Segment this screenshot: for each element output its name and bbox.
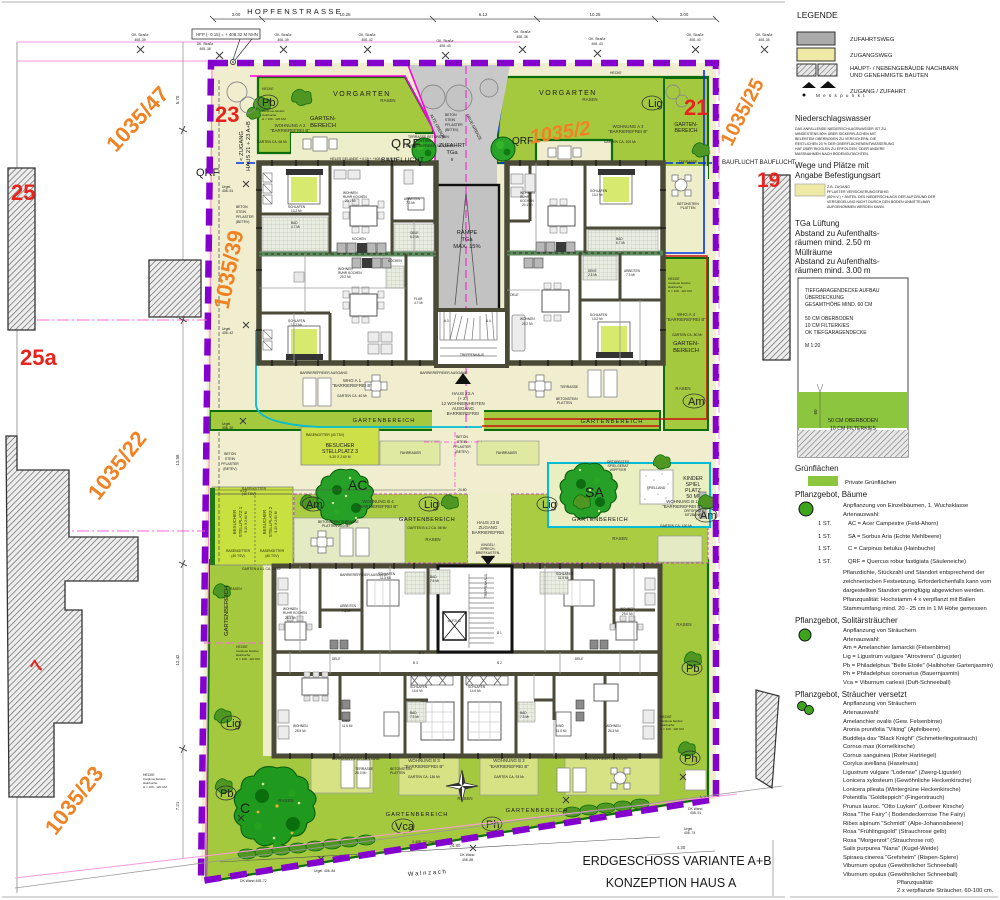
- svg-text:"BARRIEREFREI B": "BARRIEREFREI B": [666, 317, 706, 322]
- svg-text:C = Carpinus betulus (Hainbuch: C = Carpinus betulus (Hainbuche): [848, 546, 936, 552]
- svg-text:12.42: 12.42: [175, 654, 180, 666]
- svg-text:408..38: 408..38: [516, 35, 527, 39]
- svg-text:"BARRIEREFREI B": "BARRIEREFREI B": [489, 764, 529, 769]
- svg-text:HELES GELANDE + 0.15 + +408.47: HELES GELANDE + 0.15 + +408.47 M NHN: [330, 157, 398, 161]
- svg-text:BAUFLUCHT BAUFLUCHT: BAUFLUCHT BAUFLUCHT: [722, 160, 796, 166]
- svg-text:WOHNEN: WOHNEN: [520, 317, 535, 321]
- svg-text:PFLASTER: PFLASTER: [236, 215, 254, 219]
- svg-text:RASENGITTER: RASENGITTER: [226, 549, 251, 553]
- svg-text:RASENGITTER: RASENGITTER: [260, 549, 285, 553]
- svg-text:25.0 M²: 25.0 M²: [622, 612, 633, 616]
- svg-text:1 ST.: 1 ST.: [818, 521, 832, 527]
- svg-text:GARTENBEREICH: GARTENBEREICH: [581, 419, 644, 425]
- svg-text:13.58: 13.58: [175, 454, 180, 466]
- svg-text:20.1 M²: 20.1 M²: [522, 203, 533, 207]
- svg-text:4.7 M²: 4.7 M²: [291, 225, 300, 229]
- svg-text:7.3 M²: 7.3 M²: [626, 273, 635, 277]
- svg-text:PLATTEN: PLATTEN: [680, 206, 696, 210]
- svg-text:4.7 M²: 4.7 M²: [414, 301, 423, 305]
- svg-text:ÜBERDECKUNG: ÜBERDECKUNG: [805, 294, 844, 301]
- svg-text:DELE: DELE: [575, 657, 583, 661]
- svg-text:408..85: 408..85: [462, 858, 473, 862]
- svg-text:Viburnum opulus (Gewöhnlicher: Viburnum opulus (Gewöhnlicher Schneeball…: [843, 872, 958, 878]
- svg-text:BETON: BETON: [456, 435, 468, 439]
- svg-text:408..43: 408..43: [439, 44, 450, 48]
- svg-text:"BARRIEREFREI B": "BARRIEREFREI B": [358, 504, 398, 509]
- svg-text:RASEN: RASEN: [230, 587, 242, 591]
- svg-text:GARTEN-: GARTEN-: [310, 116, 336, 122]
- svg-text:BESUCHER: BESUCHER: [262, 510, 267, 534]
- svg-text:Stammumfang mind. 20 - 25 cm i: Stammumfang mind. 20 - 25 cm in 1 M Höhe…: [843, 606, 987, 612]
- svg-text:Pflanzdichte, Stückzahl und St: Pflanzdichte, Stückzahl und Standort ent…: [843, 570, 985, 576]
- svg-text:KONZEPTION HAUS A: KONZEPTION HAUS A: [606, 876, 737, 890]
- svg-text:Lonicera xylosteum (Gewöhnlich: Lonicera xylosteum (Gewöhnliche Heckenki…: [843, 778, 972, 784]
- svg-text:Artenauswahl:: Artenauswahl:: [843, 512, 880, 518]
- svg-text:OK. Straße: OK. Straße: [359, 33, 376, 37]
- svg-text:Corylus avellana (Haselnuss): Corylus avellana (Haselnuss): [843, 761, 918, 767]
- svg-text:Pflanzgebot, Bäume: Pflanzgebot, Bäume: [795, 490, 868, 499]
- svg-text:Aronia prunifolia "Viking" (Ap: Aronia prunifolia "Viking" (Apfelbeere): [843, 727, 940, 733]
- svg-text:Pflanzgebot, Solitärsträucher: Pflanzgebot, Solitärsträucher: [795, 616, 898, 625]
- svg-text:BETON: BETON: [236, 205, 248, 209]
- svg-text:OK. Straße: OK. Straße: [514, 30, 531, 34]
- svg-text:HAUPT- / NEBENGEBÄUDE NACHBARN: HAUPT- / NEBENGEBÄUDE NACHBARN: [850, 65, 959, 72]
- svg-text:HECKE: HECKE: [610, 71, 622, 75]
- svg-text:zeichnerischen Festsetzung. Er: zeichnerischen Festsetzung. Erforderlich…: [843, 579, 991, 585]
- svg-text:14.6 M²: 14.6 M²: [470, 689, 481, 693]
- svg-text:11.6 M²: 11.6 M²: [342, 724, 353, 728]
- svg-text:GARTENBEREICH: GARTENBEREICH: [353, 418, 416, 424]
- svg-text:HAUS 21 + 23 A+B: HAUS 21 + 23 A+B: [246, 121, 252, 171]
- svg-text:RAMPE: RAMPE: [457, 230, 478, 236]
- svg-text:7.21: 7.21: [175, 801, 180, 810]
- svg-text:Lig = Ligustrum vulgare "Atrov: Lig = Ligustrum vulgare "Atrovirens" (Li…: [843, 654, 961, 660]
- svg-text:STEIN: STEIN: [445, 118, 456, 122]
- svg-text:GARTENBEREICH: GARTENBEREICH: [224, 586, 230, 636]
- svg-text:H = 100 - 120 CM: H = 100 - 120 CM: [262, 117, 286, 121]
- svg-text:LEGENDE: LEGENDE: [797, 10, 838, 20]
- svg-text:BARRIEREFREI: BARRIEREFREI: [472, 530, 504, 535]
- svg-text:HAT ÜBER RIGOLEN ZU ERFOLGEN,: HAT ÜBER RIGOLEN ZU ERFOLGEN, ODER ANDER…: [795, 147, 885, 151]
- svg-text:WOHNEN: WOHNEN: [293, 724, 308, 728]
- svg-text:SA: SA: [585, 484, 604, 500]
- svg-text:408..35: 408..35: [758, 38, 769, 42]
- svg-text:A 3: A 3: [444, 319, 449, 323]
- svg-text:TIEFGARAGENDECKE AUFBAU: TIEFGARAGENDECKE AUFBAU: [805, 288, 880, 294]
- svg-text:BARRIEREFREI: BARRIEREFREI: [447, 411, 479, 416]
- svg-text:Lig: Lig: [424, 499, 439, 511]
- svg-text:RASENGITTER (40 TSV): RASENGITTER (40 TSV): [306, 433, 345, 437]
- svg-text:Private Grünflächen: Private Grünflächen: [845, 480, 896, 486]
- svg-text:PFLASTER VERSICKERUNGSFÄHIG: PFLASTER VERSICKERUNGSFÄHIG: [827, 190, 889, 194]
- svg-text:BEREICH: BEREICH: [673, 348, 699, 354]
- svg-text:STELLPLATZ 2: STELLPLATZ 2: [268, 506, 273, 537]
- svg-text:Grünflächen: Grünflächen: [795, 464, 839, 473]
- svg-text:Cornus sanguinea (Roter Hartri: Cornus sanguinea (Roter Hartriegel): [843, 753, 937, 759]
- svg-text:STEIN: STEIN: [236, 210, 247, 214]
- svg-text:BARRIEREFREIER AUSGANG: BARRIEREFREIER AUSGANG: [332, 757, 380, 761]
- svg-text:(60% V.) + ANTEIL DES NIEDERSC: (60% V.) + ANTEIL DES NIEDERSCHLAGS DER …: [827, 195, 936, 199]
- svg-text:Rosa "Morgenrot" (Strauchrose: Rosa "Morgenrot" (Strauchrose rot): [843, 838, 934, 844]
- svg-text:5.70: 5.70: [175, 95, 180, 104]
- svg-text:TERRASSE: TERRASSE: [679, 160, 698, 164]
- svg-text:DK Wand: DK Wand: [460, 853, 474, 857]
- svg-text:OK. Straße: OK. Straße: [437, 39, 454, 43]
- svg-text:7.3 M²: 7.3 M²: [410, 715, 419, 719]
- svg-text:28.5 M²: 28.5 M²: [295, 729, 306, 733]
- svg-text:19: 19: [757, 169, 780, 192]
- svg-text:GARTEN B 4.2 CA. 56 M²: GARTEN B 4.2 CA. 56 M²: [407, 526, 447, 530]
- svg-text:DK. Straße: DK. Straße: [197, 42, 214, 46]
- svg-text:(BETEV): (BETEV): [455, 450, 468, 454]
- svg-text:WOHNUNG B 2: WOHNUNG B 2: [493, 758, 525, 763]
- svg-text:2 x verpflanzte Sträucher, 60-: 2 x verpflanzte Sträucher, 60-100 cm.: [897, 888, 994, 894]
- svg-text:Vca: Vca: [395, 821, 415, 833]
- svg-text:Anpflanzung von Sträuchern: Anpflanzung von Sträuchern: [843, 628, 916, 634]
- svg-text:13.2 M²: 13.2 M²: [592, 317, 603, 321]
- svg-text:Pflanzgebot, Sträucher versetz: Pflanzgebot, Sträucher versetzt: [795, 690, 907, 699]
- svg-text:Amelanchier ovalis (Gew. Felse: Amelanchier ovalis (Gew. Felsenbirne): [843, 719, 942, 725]
- svg-text:GARTEN CA. 80 M²: GARTEN CA. 80 M²: [672, 333, 703, 337]
- svg-text:10 CM FILTERKIES: 10 CM FILTERKIES: [805, 323, 850, 329]
- svg-text:"BARRIEREFREI B": "BARRIEREFREI B": [270, 128, 310, 133]
- svg-text:< ZUGANG: < ZUGANG: [239, 131, 245, 161]
- svg-text:408..42: 408..42: [361, 38, 372, 42]
- svg-text:TGa Lüftung: TGa Lüftung: [795, 219, 839, 228]
- svg-text:STELLPLATZ 1: STELLPLATZ 1: [238, 506, 243, 537]
- svg-text:BETON: BETON: [445, 113, 457, 117]
- svg-text:A 4: A 4: [486, 319, 491, 323]
- svg-text:DELE: DELE: [332, 657, 340, 661]
- svg-text:408..74: 408..74: [684, 831, 695, 835]
- svg-text:(40 TSV): (40 TSV): [231, 554, 245, 558]
- svg-text:Anpflanzung von Sträuchern: Anpflanzung von Sträuchern: [843, 701, 916, 707]
- svg-text:6.7 M²: 6.7 M²: [616, 241, 625, 245]
- svg-text:PLATTEN 20.0 M²: PLATTEN 20.0 M²: [322, 524, 350, 528]
- svg-text:Pb = Philadelphus "Belle Etoil: Pb = Philadelphus "Belle Etoile" (Halbho…: [843, 663, 993, 669]
- svg-text:Lig: Lig: [542, 499, 557, 511]
- svg-text:"BARRIEREFREI B": "BARRIEREFREI B": [662, 504, 702, 509]
- svg-text:TERRASSE: TERRASSE: [560, 385, 579, 389]
- svg-text:GARTEN CA. 40 M²: GARTEN CA. 40 M²: [337, 394, 368, 398]
- svg-text:KOCHEN: KOCHEN: [352, 237, 366, 241]
- svg-text:GARTEN CA. 136 M²: GARTEN CA. 136 M²: [408, 775, 441, 779]
- svg-text:Viburnum opulus (Gewöhnlicher: Viburnum opulus (Gewöhnlicher Schneeball…: [843, 863, 958, 869]
- svg-text:räumen mind. 3.00 m: räumen mind. 3.00 m: [795, 266, 871, 275]
- svg-text:AUFZUG: AUFZUG: [448, 619, 462, 623]
- svg-text:WOHNUNG B 3: WOHNUNG B 3: [408, 758, 440, 763]
- svg-text:Abstand zu Aufenthalts-: Abstand zu Aufenthalts-: [795, 229, 880, 238]
- svg-text:50 CM OBERBODEN: 50 CM OBERBODEN: [828, 418, 878, 424]
- svg-text:WIPPTIER: WIPPTIER: [610, 468, 627, 472]
- svg-text:VORGARTEN: VORGARTEN: [333, 91, 391, 98]
- svg-text:Pb: Pb: [220, 788, 233, 800]
- svg-text:VORGARTEN: VORGARTEN: [539, 90, 597, 97]
- svg-text:OK. Straße: OK. Straße: [132, 33, 149, 37]
- svg-text:23: 23: [215, 102, 239, 127]
- svg-text:Pb: Pb: [686, 663, 699, 675]
- svg-text:BARRIEREFREIER AUSGANG: BARRIEREFREIER AUSGANG: [420, 371, 468, 375]
- svg-text:BARRIEREFREIER AUSGANG: BARRIEREFREIER AUSGANG: [580, 757, 628, 761]
- svg-text:Potentilla "Goldteppich" (Fing: Potentilla "Goldteppich" (Fingerstrauch): [843, 795, 944, 801]
- svg-text:PLATTEN: PLATTEN: [416, 139, 432, 143]
- svg-text:MINDESTENS 80% ÜBER SICKERFLÄC: MINDESTENS 80% ÜBER SICKERFLÄCHEN MIT: [795, 132, 877, 136]
- svg-text:(BETEV): (BETEV): [445, 128, 458, 132]
- svg-text:OK TIEFGARAGENDECKE: OK TIEFGARAGENDECKE: [805, 330, 867, 336]
- svg-text:29.2 M²: 29.2 M²: [340, 275, 351, 279]
- svg-text:BELEBTEM OBERBODEN ZU VERSICKE: BELEBTEM OBERBODEN ZU VERSICKERN. DIE: [795, 137, 877, 141]
- svg-text:60: 60: [813, 409, 818, 415]
- svg-text:"BARRIEREFREI B": "BARRIEREFREI B": [332, 383, 372, 388]
- svg-text:29.2 M²: 29.2 M²: [522, 322, 533, 326]
- svg-text:408..39: 408..39: [134, 38, 145, 42]
- svg-text:GARTENBEREICH: GARTENBEREICH: [506, 808, 569, 814]
- svg-text:ANLAGE: ANLAGE: [481, 555, 495, 559]
- svg-text:BEREICH: BEREICH: [674, 128, 697, 134]
- svg-text:13.2 M²: 13.2 M²: [291, 323, 302, 327]
- svg-text:25a: 25a: [20, 345, 57, 370]
- svg-text:5.20 X 2.60 M: 5.20 X 2.60 M: [274, 511, 278, 532]
- svg-text:PFLASTER: PFLASTER: [221, 462, 239, 466]
- svg-text:VERSIEGELUNG NICHT DURCH DEN B: VERSIEGELUNG NICHT DURCH DEN BODEN UNMIT…: [827, 200, 930, 204]
- svg-text:MASSNAHMEN NACH BODENGUTACHTEN: MASSNAHMEN NACH BODENGUTACHTEN.: [795, 152, 869, 156]
- svg-text:QRF = Quercus robur fastigiata: QRF = Quercus robur fastigiata (Säulenei…: [848, 559, 966, 565]
- svg-text:11.5 M²: 11.5 M²: [558, 576, 569, 580]
- svg-text:Prunus lauroc. "Otto Luyken" (: Prunus lauroc. "Otto Luyken" (Lorbeer Ki…: [843, 804, 964, 810]
- svg-text:ZUGANGSWEG: ZUGANGSWEG: [850, 53, 893, 59]
- svg-text:24.1 M²: 24.1 M²: [285, 616, 296, 620]
- svg-text:1 ST.: 1 ST.: [818, 534, 832, 540]
- svg-text:3.00: 3.00: [232, 12, 241, 17]
- svg-text:10.25: 10.25: [590, 12, 602, 17]
- svg-text:Rosa "The Fairy" ( Bodendecker: Rosa "The Fairy" ( Bodendeckerrose The F…: [843, 812, 965, 818]
- svg-text:408..30: 408..30: [222, 426, 233, 430]
- svg-text:ARBEITEN: ARBEITEN: [340, 604, 357, 608]
- svg-text:TREPPENHAUS: TREPPENHAUS: [484, 574, 488, 598]
- svg-text:AUFGENOMMEN WERDEN KANN.: AUFGENOMMEN WERDEN KANN.: [827, 205, 885, 209]
- svg-text:Cornus mas (Kornelkirsche): Cornus mas (Kornelkirsche): [843, 744, 915, 750]
- svg-text:B 4: B 4: [419, 651, 424, 655]
- svg-text:SPIELLAND: SPIELLAND: [647, 486, 666, 490]
- svg-text:RASEN: RASEN: [676, 622, 691, 627]
- svg-text:408..39: 408..39: [277, 38, 288, 42]
- svg-text:Ligustrum vulgare "Lodense" (Z: Ligustrum vulgare "Lodense" (Zwerg-Ligus…: [843, 770, 961, 776]
- svg-text:SA = Sorbus Aria (Echte Mehlbe: SA = Sorbus Aria (Echte Mehlbeere): [848, 534, 941, 540]
- svg-text:(40 TSV): (40 TSV): [265, 554, 279, 558]
- svg-text:Pflanzqualität:: Pflanzqualität:: [897, 880, 934, 886]
- svg-text:11.6 M²: 11.6 M²: [556, 729, 567, 733]
- svg-text:GARTEN CA. 100 M²: GARTEN CA. 100 M²: [604, 140, 637, 144]
- svg-text:2.5 M²: 2.5 M²: [588, 273, 597, 277]
- svg-text:BARRIEREFREIER AUSGANG: BARRIEREFREIER AUSGANG: [340, 573, 388, 577]
- svg-text:Am = Amelanchier lamarckii (Fe: Am = Amelanchier lamarckii (Felsenbirne): [843, 645, 951, 651]
- svg-text:Pflanzqualität: Hochstamm 4 x: Pflanzqualität: Hochstamm 4 x verpflanzt…: [843, 597, 975, 603]
- svg-text:ZUFAHRTSWEG: ZUFAHRTSWEG: [850, 37, 895, 43]
- svg-text:Ph: Ph: [684, 753, 697, 765]
- svg-text:13.2 M²: 13.2 M²: [592, 193, 603, 197]
- svg-text:Niederschlagswasser: Niederschlagswasser: [795, 114, 871, 123]
- svg-text:GARTENBEREICH: GARTENBEREICH: [572, 517, 628, 523]
- svg-text:RUHR KOCHEN: RUHR KOCHEN: [283, 611, 307, 615]
- svg-text:GESAMTHÖHE MIND. 60 CM: GESAMTHÖHE MIND. 60 CM: [805, 301, 872, 308]
- svg-text:HECKE: HECKE: [262, 87, 274, 91]
- svg-text:Z.B. ZUGANG: Z.B. ZUGANG: [827, 185, 850, 189]
- svg-text:RASEN: RASEN: [675, 386, 690, 391]
- svg-text:1 ST.: 1 ST.: [818, 546, 832, 552]
- svg-text:H = 100 - 120 CM: H = 100 - 120 CM: [236, 657, 260, 661]
- svg-text:HOPFENSTRASSE: HOPFENSTRASSE: [247, 7, 343, 16]
- svg-text:FAHRRADER: FAHRRADER: [400, 451, 421, 455]
- svg-text:Rosa "Frühlingsgold" (Strauchr: Rosa "Frühlingsgold" (Strauchrose gelb): [843, 829, 946, 835]
- svg-text:OK. Straße: OK. Straße: [275, 33, 292, 37]
- svg-text:21: 21: [684, 95, 708, 120]
- svg-text:RASEN: RASEN: [278, 798, 293, 803]
- svg-text:GARTEN CA. 66 M²: GARTEN CA. 66 M²: [257, 140, 288, 144]
- svg-text:BARRIEREFREIER AUSGANG: BARRIEREFREIER AUSGANG: [300, 371, 348, 375]
- svg-text:GARTEN CA. 120 M²: GARTEN CA. 120 M²: [660, 524, 693, 528]
- svg-text:OK. Straße: OK. Straße: [589, 37, 606, 41]
- svg-text:24.80: 24.80: [458, 488, 467, 492]
- svg-text:7.8 M²: 7.8 M²: [342, 609, 351, 613]
- svg-text:Abstand zu Aufenthalts-: Abstand zu Aufenthalts-: [795, 257, 880, 266]
- svg-text:RASEN: RASEN: [612, 536, 627, 541]
- svg-text:PFLASTER: PFLASTER: [453, 445, 471, 449]
- svg-text:Pb: Pb: [262, 97, 275, 109]
- svg-text:6.2 M²: 6.2 M²: [410, 235, 419, 239]
- svg-text:Ph = Philadelphus coronarius (: Ph = Philadelphus coronarius (Bauernjasm…: [843, 671, 960, 677]
- svg-text:Lig: Lig: [226, 718, 241, 730]
- svg-text:OELE: OELE: [510, 293, 519, 297]
- svg-text:RASEN: RASEN: [457, 796, 472, 801]
- svg-text:20.1 M²: 20.1 M²: [345, 199, 356, 203]
- svg-text:5.20 X 2.60 M: 5.20 X 2.60 M: [329, 455, 350, 459]
- svg-text:28.0 M²: 28.0 M²: [355, 771, 367, 775]
- svg-text:RESTLICHEN 20 % DER OBERFLÄCHE: RESTLICHEN 20 % DER OBERFLÄCHENENTWÄSSER…: [795, 142, 894, 146]
- svg-text:"BARRIEREFREI B": "BARRIEREFREI B": [608, 129, 648, 134]
- svg-text:50 CM OBERBODEN: 50 CM OBERBODEN: [805, 316, 853, 322]
- svg-text:408..38: 408..38: [199, 47, 210, 51]
- svg-text:BARRIEREFREIER AUSGANG: BARRIEREFREIER AUSGANG: [406, 144, 454, 148]
- svg-text:10.25: 10.25: [340, 12, 352, 17]
- svg-text:(BETEV): (BETEV): [236, 220, 249, 224]
- svg-text:25: 25: [11, 180, 35, 205]
- svg-text:Buddleja dav "Black Knight" (S: Buddleja dav "Black Knight" (Schmetterli…: [843, 736, 977, 742]
- svg-text:GARTENBEREICH: GARTENBEREICH: [386, 812, 449, 818]
- svg-text:7.6 M²: 7.6 M²: [430, 579, 439, 583]
- svg-text:408..51: 408..51: [222, 189, 233, 193]
- svg-text:KOCHEN: KOCHEN: [388, 259, 402, 263]
- svg-text:KIND: KIND: [556, 724, 564, 728]
- svg-text:GARTENBEREICH: GARTENBEREICH: [399, 517, 455, 523]
- svg-text:H = 100 - 120 CM: H = 100 - 120 CM: [668, 289, 692, 293]
- svg-text:STEIN: STEIN: [457, 440, 468, 444]
- svg-text:4.15: 4.15: [240, 489, 247, 493]
- svg-text:RASEN: RASEN: [582, 97, 597, 102]
- svg-text:v: v: [451, 157, 454, 163]
- svg-text:1 ST.: 1 ST.: [818, 559, 832, 565]
- svg-text:5.20 X 2.60 M: 5.20 X 2.60 M: [244, 511, 248, 532]
- svg-text:WOHNEN: WOHNEN: [620, 607, 635, 611]
- svg-text:HFP (- 0.15) = + 408.32 M NHN: HFP (- 0.15) = + 408.32 M NHN: [196, 32, 258, 37]
- svg-text:PLATTEN: PLATTEN: [390, 771, 406, 775]
- svg-text:OK. Straße: OK. Straße: [687, 33, 704, 37]
- svg-text:M 1:20: M 1:20: [805, 343, 821, 349]
- svg-text:6.12: 6.12: [479, 12, 488, 17]
- svg-text:Salix purpurea "Nana" (Kugel-W: Salix purpurea "Nana" (Kugel-Weide): [843, 846, 939, 852]
- svg-text:dargestellten Standort geringf: dargestellten Standort geringfügig abgew…: [843, 588, 985, 594]
- svg-text:RASEN: RASEN: [425, 537, 440, 542]
- svg-text:7.3 M²: 7.3 M²: [520, 715, 529, 719]
- svg-text:M e s s p u n k t: M e s s p u n k t: [816, 93, 865, 98]
- svg-text:Anpflanzung von Einzelbäumen,: Anpflanzung von Einzelbäumen, 1. Wuchskl…: [843, 503, 968, 509]
- svg-text:4.30: 4.30: [677, 845, 686, 850]
- svg-text:BESUCHER: BESUCHER: [232, 510, 237, 534]
- svg-text:Müllräume: Müllräume: [795, 248, 833, 257]
- svg-text:408..91: 408..91: [690, 811, 701, 815]
- svg-text:GARTEN-: GARTEN-: [673, 341, 699, 347]
- svg-text:TGa: TGa: [446, 150, 458, 156]
- svg-text:Artenauswahl:: Artenauswahl:: [843, 637, 880, 643]
- svg-text:GARTEN CA. 93 M²: GARTEN CA. 93 M²: [494, 775, 525, 779]
- svg-text:B 1: B 1: [497, 631, 502, 635]
- svg-text:Artenauswahl:: Artenauswahl:: [843, 710, 880, 716]
- svg-text:räumen mind. 2.50 m: räumen mind. 2.50 m: [795, 238, 871, 247]
- svg-text:ERDGESCHOSS VARIANTE A+B: ERDGESCHOSS VARIANTE A+B: [582, 854, 771, 868]
- svg-text:BETON: BETON: [224, 452, 236, 456]
- svg-text:DK Wand 408..72: DK Wand 408..72: [240, 879, 267, 883]
- svg-text:Wege und Plätze mit: Wege und Plätze mit: [795, 161, 869, 170]
- svg-text:MAX. 15%: MAX. 15%: [453, 244, 480, 250]
- svg-text:BEREICH: BEREICH: [310, 123, 336, 129]
- svg-text:OK. Straße: OK. Straße: [756, 33, 773, 37]
- svg-text:UND GENEHMIGTE BAUTEN: UND GENEHMIGTE BAUTEN: [850, 73, 928, 79]
- svg-text:Urgel. 406..84: Urgel. 406..84: [314, 869, 335, 873]
- svg-text:(BETEV): (BETEV): [223, 467, 236, 471]
- svg-text:QRF: QRF: [512, 136, 533, 147]
- svg-text:B 2: B 2: [497, 661, 502, 665]
- svg-text:Angabe Befestigungsart: Angabe Befestigungsart: [795, 171, 881, 180]
- svg-text:C: C: [240, 800, 250, 816]
- svg-text:408..40: 408..40: [689, 38, 700, 42]
- svg-text:RASEN: RASEN: [380, 98, 395, 103]
- svg-text:WOHNEN: WOHNEN: [606, 724, 621, 728]
- svg-text:STEIN: STEIN: [225, 457, 236, 461]
- svg-text:FAHRRADER: FAHRRADER: [496, 451, 517, 455]
- svg-text:Vca = Viburnum carlesii (Duft-: Vca = Viburnum carlesii (Duft-Schneeball…: [843, 680, 951, 686]
- svg-text:Spiraea cinerea "Grefsheim" (R: Spiraea cinerea "Grefsheim" (Rispen-Spie…: [843, 855, 958, 861]
- svg-text:AC: AC: [348, 477, 367, 493]
- svg-text:AC = Acer Campestre (Feld-Ahor: AC = Acer Campestre (Feld-Ahorn): [848, 521, 938, 527]
- svg-text:Lonicera pileata (Wintergrüne: Lonicera pileata (Wintergrüne Heckenkirs…: [843, 787, 961, 793]
- svg-text:H = 100 - 120 CM: H = 100 - 120 CM: [660, 727, 684, 731]
- svg-text:GARTEN A 6.1 CA. 21 M²: GARTEN A 6.1 CA. 21 M²: [242, 567, 282, 571]
- svg-text:7.3 M²: 7.3 M²: [406, 201, 415, 205]
- svg-text:3.00: 3.00: [680, 12, 689, 17]
- svg-text:H = 100 - 120 CM: H = 100 - 120 CM: [143, 785, 167, 789]
- svg-text:26.3 M²: 26.3 M²: [608, 729, 619, 733]
- svg-text:TREPPENHAUS: TREPPENHAUS: [460, 353, 484, 357]
- svg-text:Ribes alpinum "Schmidt" (Alpe-: Ribes alpinum "Schmidt" (Alpe-Johannisbe…: [843, 821, 964, 827]
- svg-text:DAS ANFALLENDE NIEDERSCHLAGSWA: DAS ANFALLENDE NIEDERSCHLAGSWASSER IST Z…: [795, 127, 886, 131]
- svg-text:PLATTEN: PLATTEN: [557, 401, 573, 405]
- svg-text:13.2 M²: 13.2 M²: [291, 209, 302, 213]
- svg-text:B 3: B 3: [413, 661, 418, 665]
- svg-text:408..43: 408..43: [591, 42, 602, 46]
- svg-text:KIND: KIND: [342, 719, 350, 723]
- svg-text:14.6 M²: 14.6 M²: [412, 689, 423, 693]
- svg-text:TGa: TGa: [461, 237, 473, 243]
- svg-text:PFLASTER: PFLASTER: [445, 123, 463, 127]
